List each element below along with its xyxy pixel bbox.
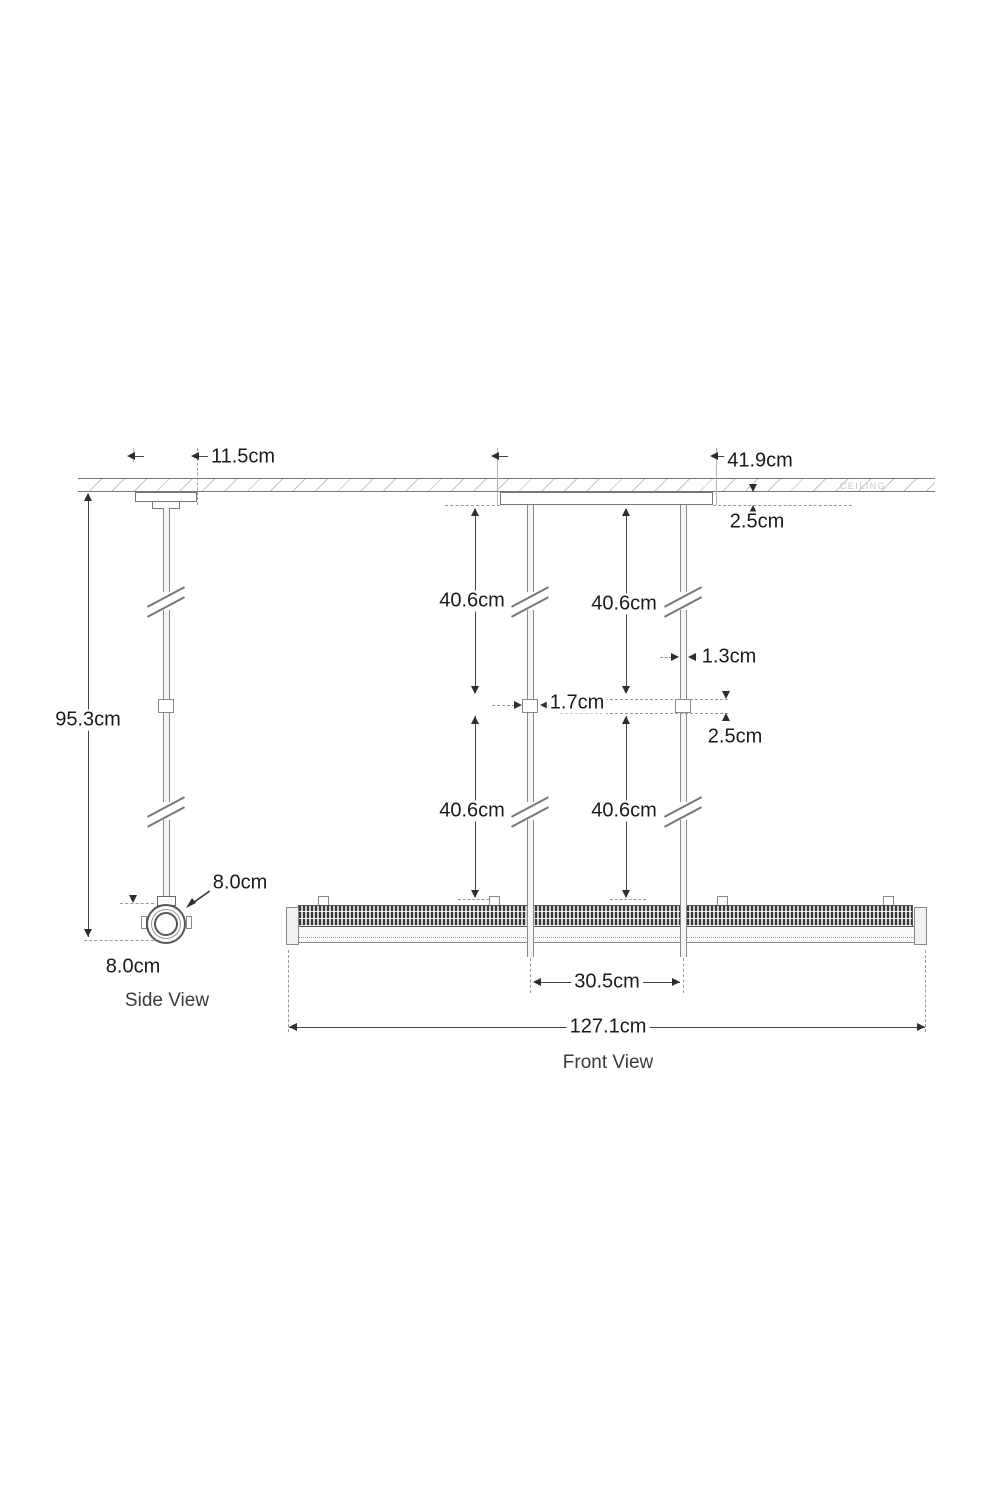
dim-stem-diameter: 1.3cm <box>699 647 759 668</box>
dim-canopy-height: 2.5cm <box>727 512 787 533</box>
bar-top-ref-right <box>610 899 646 900</box>
dim-upper-left-drop: 40.6cm <box>436 591 508 612</box>
bar-base-plate <box>286 926 927 943</box>
front-canopy <box>500 492 713 505</box>
dim-fixture-diameter: 8.0cm <box>210 873 270 894</box>
dim-lower-right-drop: 40.6cm <box>588 801 660 822</box>
side-canopy-dim-arrow-right <box>191 452 199 460</box>
ceiling-hatch-band <box>78 478 935 492</box>
fixture-height-ref-bottom <box>84 940 154 941</box>
dim-connector-width: 1.7cm <box>547 693 607 714</box>
front-connector-right <box>675 699 691 713</box>
side-connector <box>158 699 174 713</box>
side-canopy-dim-stub-left <box>135 456 144 457</box>
fixture-length-arrow-right <box>917 1023 925 1031</box>
ceiling-label: CEILING <box>840 481 887 491</box>
connector-height-arrow-bottom <box>722 713 730 721</box>
side-canopy-dim-stub-right <box>199 456 208 457</box>
stem-spacing-arrow-left <box>533 978 541 986</box>
fixture-length-arrow-left <box>289 1023 297 1031</box>
stem-spacing-ext-right <box>683 958 684 993</box>
overall-drop-arrow-bottom <box>84 929 92 937</box>
dim-front-canopy-width: 41.9cm <box>724 451 796 472</box>
side-view-label: Side View <box>125 990 209 1012</box>
stem-spacing-arrow-right <box>672 978 680 986</box>
fixture-length-ext-left <box>288 950 289 1032</box>
side-fixture-inner-ring <box>154 912 178 936</box>
right-drop-arrow-1 <box>622 508 630 516</box>
left-drop-arrow-2 <box>471 686 479 694</box>
connector-width-arrow-left <box>514 701 522 709</box>
front-stem-right <box>680 505 687 957</box>
side-fixture-right-notch <box>186 916 192 929</box>
connector-height-arrow-top <box>722 691 730 699</box>
front-canopy-dim-arrow-right <box>710 452 718 460</box>
bar-end-cap-left <box>286 907 299 945</box>
front-connector-left <box>522 699 538 713</box>
dim-connector-height: 2.5cm <box>705 727 765 748</box>
left-drop-arrow-3 <box>471 716 479 724</box>
left-drop-arrow-1 <box>471 508 479 516</box>
canopy-bottom-ref-right <box>713 505 852 506</box>
left-drop-arrow-4 <box>471 890 479 898</box>
overall-drop-arrow-top <box>84 493 92 501</box>
right-drop-arrow-2 <box>622 686 630 694</box>
stem-diameter-arrow-right <box>688 653 696 661</box>
dim-lower-left-drop: 40.6cm <box>436 801 508 822</box>
front-canopy-dim-arrow-left <box>491 452 499 460</box>
side-canopy-dim-arrow-left <box>127 452 135 460</box>
dim-overall-drop: 95.3cm <box>52 710 124 731</box>
dim-side-canopy-width: 11.5cm <box>208 447 278 468</box>
canopy-bottom-ref-left <box>445 505 500 506</box>
right-drop-arrow-4 <box>622 890 630 898</box>
bar-base-dotted-line <box>292 937 922 938</box>
right-drop-arrow-3 <box>622 716 630 724</box>
bar-mesh-diffuser <box>298 905 913 927</box>
fixture-height-arrow-top <box>129 895 137 903</box>
dim-fixture-length: 127.1cm <box>567 1017 650 1038</box>
fixture-height-ref-top <box>120 903 154 904</box>
fixture-length-ext-right <box>925 950 926 1032</box>
canopy-height-arrow-top <box>749 484 757 492</box>
stem-diameter-arrow-left <box>671 653 679 661</box>
dim-stem-spacing: 30.5cm <box>571 972 643 993</box>
dim-fixture-height: 8.0cm <box>103 957 163 978</box>
front-canopy-dim-stub-left <box>499 456 508 457</box>
technical-drawing-canvas: CEILING 11.5cm 95.3cm 8.0cm 8.0cm Side V… <box>0 0 1000 1500</box>
front-view-label: Front View <box>563 1052 653 1074</box>
front-stem-left <box>527 505 534 957</box>
bar-end-cap-right <box>914 907 927 945</box>
dim-upper-right-drop: 40.6cm <box>588 594 660 615</box>
stem-spacing-ext-left <box>530 958 531 993</box>
